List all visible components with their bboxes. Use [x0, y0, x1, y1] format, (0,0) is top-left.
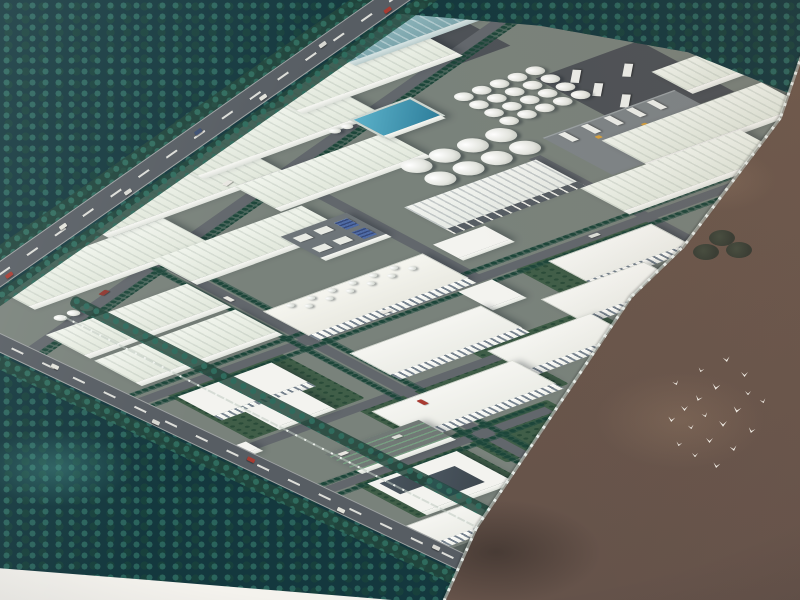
panel-rack: [351, 228, 377, 240]
equipment-unit: [293, 233, 314, 242]
car: [151, 419, 160, 426]
field-shrub: [726, 242, 752, 258]
panel-rack: [334, 218, 360, 230]
car: [123, 188, 132, 196]
car: [4, 271, 13, 279]
car: [383, 6, 392, 14]
equipment-unit: [312, 243, 333, 252]
car: [194, 128, 203, 136]
equipment-unit: [313, 226, 334, 235]
car: [50, 363, 59, 370]
equipment-unit: [332, 236, 353, 245]
car: [59, 222, 68, 230]
parked-car: [391, 434, 403, 439]
car: [247, 456, 256, 463]
car: [336, 507, 345, 514]
car: [432, 544, 441, 551]
aerial-rendering-photo: [0, 0, 800, 600]
car: [318, 41, 327, 49]
car: [259, 93, 268, 101]
field-shrub: [693, 244, 719, 260]
